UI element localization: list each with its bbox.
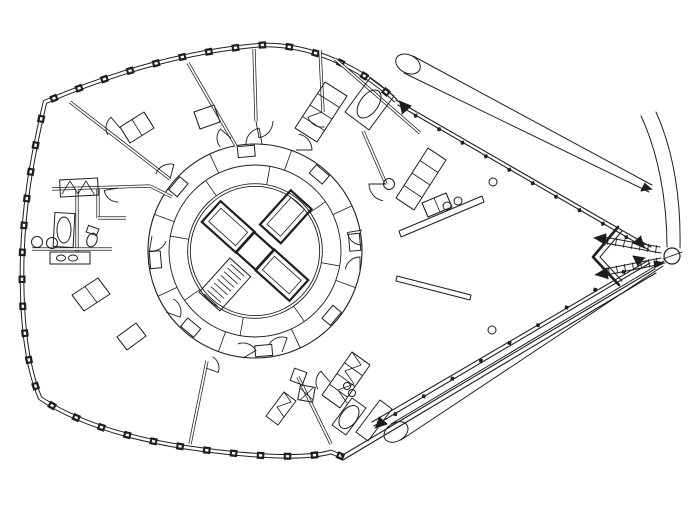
door-swing — [256, 121, 273, 138]
corridor-partition — [170, 236, 190, 239]
turnbuckle-arrow — [595, 268, 608, 279]
basin — [57, 255, 66, 261]
corridor-partition — [266, 166, 269, 186]
partition-wall-gap — [188, 63, 236, 146]
bathtub-basin — [352, 86, 385, 122]
shelf-divisions-rung — [98, 278, 110, 294]
shelf-divisions-rung — [132, 120, 142, 136]
shelf-divisions-rung — [420, 161, 438, 173]
sink — [47, 238, 58, 249]
shelf-rail — [396, 276, 471, 300]
spar-end-upper — [392, 50, 423, 78]
facade-mullions-clamp-gap — [23, 331, 26, 335]
bathtub — [332, 398, 366, 435]
shelf-divisions-rung — [144, 112, 154, 128]
core-ring-outer — [148, 144, 362, 358]
door-swing — [149, 236, 166, 251]
ring-partition — [218, 332, 225, 352]
facade-mullions-clamp-gap — [234, 46, 238, 49]
ring-shaft-stub — [169, 177, 188, 197]
shelf-divisions-rung — [404, 186, 422, 198]
facade-mullions-clamp-gap — [21, 251, 24, 254]
stair-treads-rung — [224, 272, 237, 284]
elevator-bank-se — [255, 249, 308, 301]
cable-ring-upper — [489, 178, 497, 186]
stair-treads-rung — [214, 283, 227, 295]
ring-partition — [336, 280, 356, 287]
core-wall-gap — [189, 185, 321, 317]
partition-wall-gap — [190, 361, 207, 444]
bathtub-basin — [57, 217, 71, 243]
stair-treads-rung — [211, 287, 224, 299]
ring-shaft-stub — [181, 318, 201, 337]
shelf-divisions-rung — [310, 105, 332, 119]
facade-edge-lower-a — [341, 269, 655, 456]
elevator-car — [209, 208, 248, 245]
mast-arc-outer — [656, 112, 680, 248]
shelf-divisions-rung — [422, 203, 428, 217]
corridor-partition — [309, 202, 325, 213]
door-swing — [246, 128, 262, 144]
stair-treads-rung — [204, 294, 217, 306]
toilet-tank — [86, 225, 99, 235]
shelf-divisions-rung — [136, 323, 146, 336]
door-swing — [296, 134, 312, 150]
turnbuckle-arrow — [594, 234, 606, 245]
truss-edge-lower-a — [372, 260, 649, 422]
ring-partition — [333, 206, 352, 215]
shelf-divisions-rung — [325, 82, 347, 96]
ring-shaft-stub — [309, 165, 329, 184]
shelf-divisions-rung — [396, 198, 414, 210]
door-swing — [369, 184, 386, 201]
truss-edge-upper-a — [396, 100, 651, 247]
ring-partition — [291, 329, 300, 348]
door-swing — [238, 343, 256, 358]
facade-mullions-clamp-gap — [313, 454, 317, 457]
cable-ring-lower — [488, 326, 496, 334]
corridor-partition — [206, 181, 217, 197]
shelf-divisions-rung — [72, 295, 84, 311]
facade-mullions-clamp-gap — [287, 45, 291, 48]
facade-mullions-clamp-gap — [232, 452, 236, 455]
door-swing — [308, 112, 325, 127]
shelf-divisions-rung — [194, 112, 200, 129]
stair-well — [199, 258, 251, 311]
corridor-partition — [185, 289, 201, 300]
partition-wall-gap — [363, 131, 386, 184]
turnbuckle-upper — [605, 243, 661, 253]
elevator-car — [262, 256, 301, 293]
spar-side — [413, 56, 652, 185]
shelf-divisions-rung — [318, 94, 340, 108]
shelf-divisions-rung — [412, 173, 430, 185]
basin — [454, 197, 462, 205]
corridor-partition — [240, 316, 243, 336]
shelf-divisions-rung — [117, 337, 127, 350]
stair-treads-rung — [221, 275, 234, 287]
ring-partition — [284, 150, 291, 170]
truss-edge-lower-b — [374, 263, 650, 426]
elevator-bank-ne — [260, 190, 312, 243]
ring-partition — [158, 287, 177, 296]
facade-mullions-clamp-gap — [286, 455, 289, 457]
side-table — [117, 323, 146, 350]
shelf-divisions-rung — [434, 198, 440, 212]
facade-mullions-clamp-gap — [25, 197, 28, 201]
floor-plan-drawing — [0, 0, 700, 518]
scanned-floor-plan-page — [0, 0, 700, 518]
wardrobe-shelves — [266, 392, 296, 425]
door-swing — [206, 357, 219, 373]
partition-wall-gap — [70, 102, 170, 179]
ring-shaft-stub — [237, 145, 255, 157]
shelf-divisions-rung — [295, 128, 317, 142]
shelf-divisions-rung — [352, 352, 370, 365]
shelf-divisions-rung — [85, 287, 97, 303]
spar-side — [404, 73, 649, 192]
elevator-bank-nw — [202, 201, 255, 253]
ring-shaft-stub — [348, 233, 360, 251]
ring-shaft-stub — [322, 305, 341, 325]
stair-treads-rung — [231, 264, 244, 276]
ring-partition — [154, 214, 174, 221]
facade-mullions-clamp-gap — [23, 224, 26, 227]
shelf-divisions-rung — [303, 117, 325, 131]
shelf-rail — [399, 196, 484, 237]
duct-box — [290, 368, 307, 385]
facade-edge-lower-b — [343, 273, 656, 460]
basin — [69, 255, 78, 261]
facade-mullions-clamp-gap — [21, 278, 23, 281]
ring-shaft-stub — [149, 251, 161, 269]
door-swing — [345, 257, 360, 272]
ring-partition — [210, 154, 219, 173]
core-lobby — [236, 232, 274, 270]
corridor-partition — [293, 305, 304, 321]
facade-mullions-clamp-gap — [259, 454, 262, 457]
stair-treads-rung — [228, 268, 241, 280]
core-ring-inner — [169, 165, 341, 337]
door-swing — [104, 188, 118, 202]
corridor-partition — [320, 262, 340, 265]
bathtub — [53, 212, 75, 247]
shelf-divisions-rung — [322, 395, 340, 408]
facade-mullions-clamp-gap — [261, 44, 264, 47]
facade-mullions-clamp-gap — [205, 449, 209, 452]
stair-treads-rung — [218, 279, 231, 291]
partition-wall-gap — [335, 59, 420, 133]
truss-edge-upper-b — [398, 105, 649, 250]
sink — [32, 237, 43, 248]
facade-mullions-clamp-gap — [21, 305, 24, 308]
shelf-divisions-rung — [214, 105, 220, 122]
shelf-divisions-rung — [428, 148, 446, 160]
ring-shaft-stub — [255, 344, 273, 356]
